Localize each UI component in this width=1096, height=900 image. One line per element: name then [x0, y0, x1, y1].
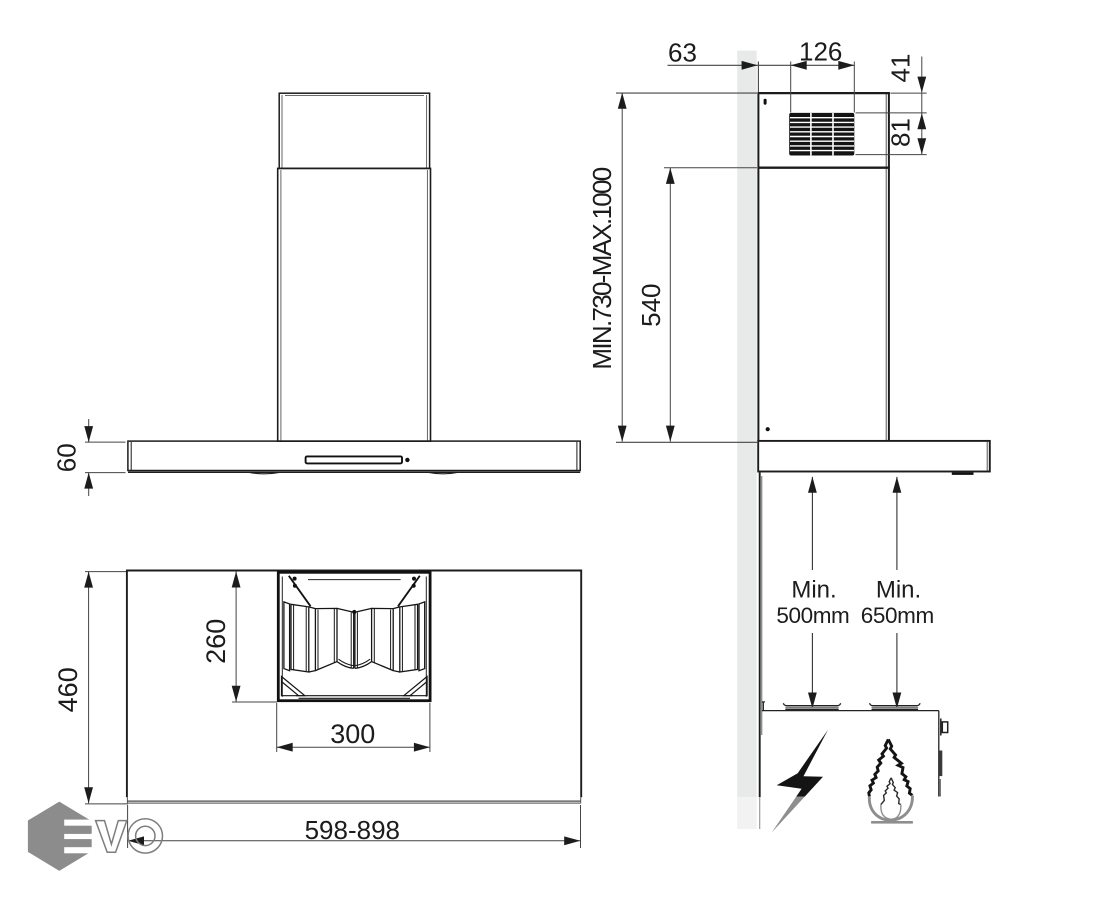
svg-text:126: 126 — [799, 37, 842, 67]
svg-text:540: 540 — [636, 284, 666, 327]
svg-text:MIN.730-MAX.1000: MIN.730-MAX.1000 — [587, 167, 617, 369]
svg-text:60: 60 — [52, 443, 82, 472]
svg-text:500mm: 500mm — [776, 603, 849, 628]
svg-text:650mm: 650mm — [861, 603, 934, 628]
svg-text:260: 260 — [201, 619, 231, 664]
svg-text:Min.: Min. — [791, 577, 836, 604]
svg-text:300: 300 — [330, 719, 375, 749]
svg-text:598-898: 598-898 — [305, 815, 400, 845]
svg-text:81: 81 — [886, 118, 916, 147]
svg-text:41: 41 — [886, 54, 916, 83]
svg-text:460: 460 — [53, 667, 83, 712]
svg-text:Min.: Min. — [876, 577, 921, 604]
svg-text:63: 63 — [668, 38, 697, 68]
